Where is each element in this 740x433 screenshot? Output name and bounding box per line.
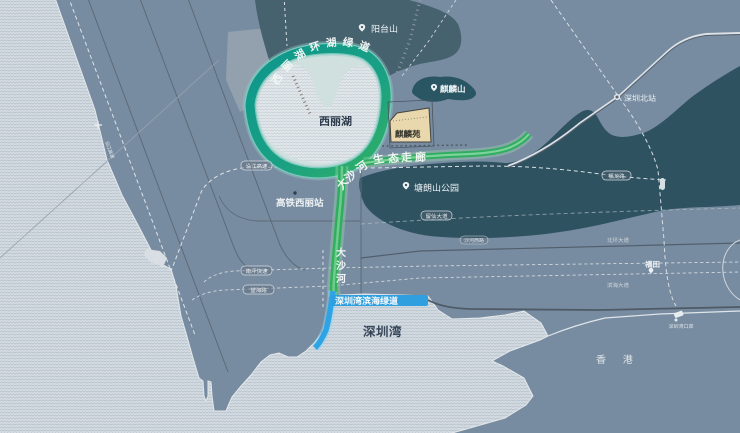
svg-text:生: 生 (372, 152, 385, 167)
svg-text:高铁西丽站: 高铁西丽站 (276, 197, 324, 209)
svg-text:麒麟苑: 麒麟苑 (395, 129, 421, 139)
svg-text:深圳北站: 深圳北站 (624, 94, 656, 103)
svg-text:南坪快速: 南坪快速 (245, 268, 268, 275)
svg-text:沙河西路: 沙河西路 (464, 237, 484, 244)
svg-text:沙: 沙 (336, 260, 346, 272)
svg-text:阳台山: 阳台山 (371, 24, 398, 34)
svg-text:深圳湾口岸: 深圳湾口岸 (668, 323, 693, 330)
svg-text:福田: 福田 (644, 260, 660, 269)
svg-text:大: 大 (336, 247, 346, 259)
svg-text:走: 走 (401, 151, 414, 165)
svg-text:塘朗山公园: 塘朗山公园 (414, 183, 459, 193)
svg-text:深圳湾: 深圳湾 (363, 325, 402, 339)
svg-text:西丽湖: 西丽湖 (319, 115, 352, 128)
svg-text:香 港: 香 港 (596, 354, 640, 366)
svg-text:留仙大道: 留仙大道 (425, 213, 448, 220)
svg-text:河: 河 (336, 273, 346, 285)
svg-text:廊: 廊 (415, 151, 426, 164)
svg-text:深圳湾滨海绿道: 深圳湾滨海绿道 (335, 296, 398, 306)
svg-text:福龙路: 福龙路 (608, 173, 625, 180)
svg-text:麒麟山: 麒麟山 (440, 84, 466, 94)
svg-text:滨海大道: 滨海大道 (607, 282, 630, 289)
svg-text:态: 态 (387, 151, 400, 165)
svg-text:望海路: 望海路 (250, 287, 267, 294)
svg-text:沿江高速: 沿江高速 (245, 163, 268, 170)
svg-text:北环大道: 北环大道 (607, 237, 630, 244)
